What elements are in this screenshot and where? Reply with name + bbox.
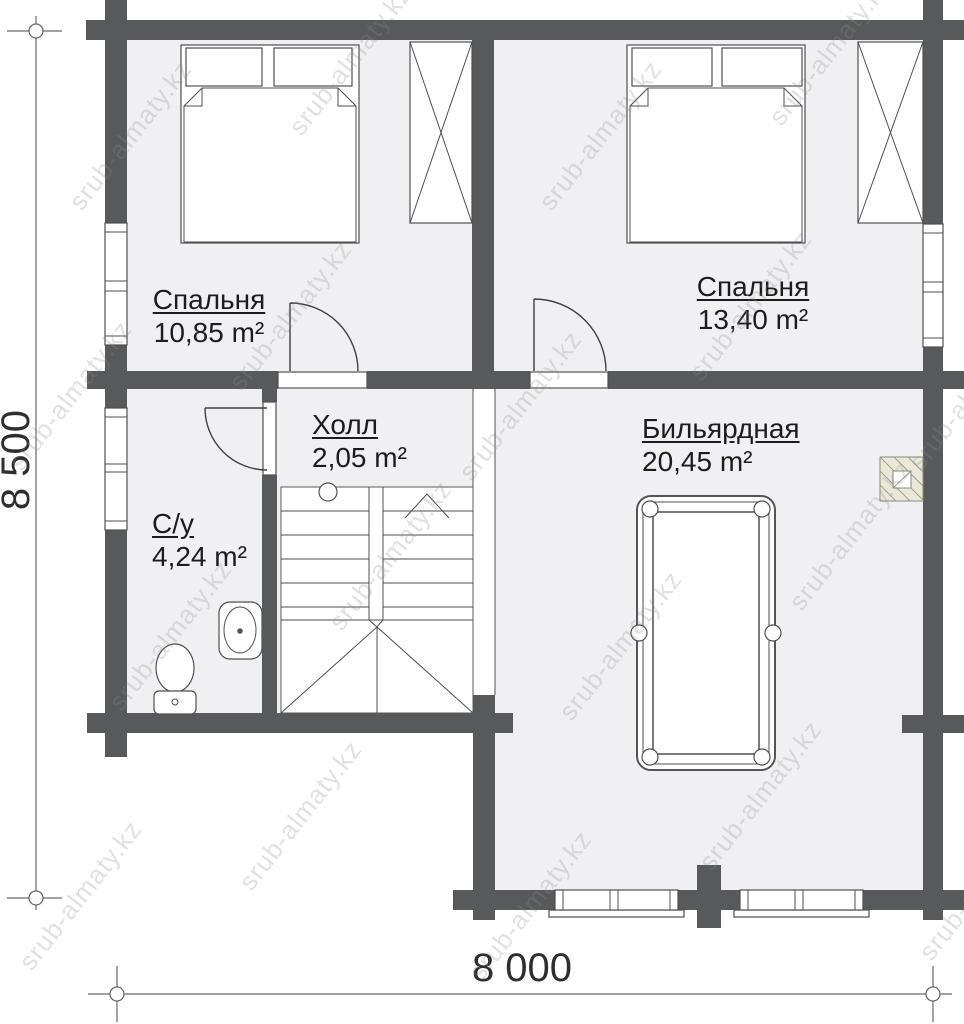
- room-label-bathroom: С/у 4,24 m²: [152, 508, 247, 573]
- room-area: 4,24 m²: [152, 541, 247, 572]
- room-label-bedroom2: Спальня 13,40 m²: [672, 271, 834, 336]
- wall-right-lower: [923, 347, 943, 920]
- wall-bottom-interior: [87, 713, 513, 733]
- wall-bottom-a: [453, 890, 555, 910]
- stairs-icon: [281, 483, 473, 713]
- wall-pier-stub-bottom: [697, 910, 721, 928]
- wardrobe-icon: [858, 42, 923, 223]
- wall-top: [86, 20, 964, 40]
- wardrobe-icon: [410, 42, 472, 223]
- bed-icon: [627, 45, 805, 243]
- wall-middle-c: [608, 371, 964, 389]
- toilet-icon: [154, 644, 196, 714]
- window-icon: [105, 223, 127, 345]
- room-name: Спальня: [697, 271, 810, 302]
- wall-bathroom-stub: [262, 389, 277, 402]
- dimension-width-label: 8 000: [420, 946, 624, 991]
- room-area: 10,85 m²: [128, 317, 290, 348]
- stair-newel-icon: [319, 483, 337, 501]
- wall-pier-stub-top: [697, 865, 721, 890]
- room-name: Бильярдная: [642, 413, 800, 444]
- room-area: 13,40 m²: [672, 304, 834, 335]
- room-name: Холл: [312, 409, 378, 440]
- billiard-table-icon: [631, 496, 781, 770]
- room-name: С/у: [152, 508, 194, 539]
- room-name: Спальня: [153, 284, 266, 315]
- wall-right-upper: [923, 0, 943, 224]
- plan-drawing: [0, 0, 964, 1024]
- wall-bathroom-partition: [262, 475, 277, 733]
- floor-plan: Спальня 10,85 m² Спальня 13,40 m² Холл 2…: [0, 0, 964, 1024]
- chimney-icon: [880, 457, 923, 501]
- room-area: 2,05 m²: [312, 442, 407, 473]
- wall-bedroom-divider: [472, 40, 494, 371]
- wall-log-end-right: [902, 715, 964, 733]
- room-label-billiard: Бильярдная 20,45 m²: [642, 413, 800, 478]
- room-label-hall: Холл 2,05 m²: [312, 409, 407, 474]
- wall-bottom-pier: [678, 890, 740, 910]
- wall-middle-a: [87, 371, 278, 389]
- window-icon: [734, 890, 869, 917]
- room-label-bedroom1: Спальня 10,85 m²: [128, 284, 290, 349]
- wall-billiard-left: [473, 695, 495, 920]
- window-icon: [923, 224, 943, 347]
- wall-middle-b: [367, 371, 530, 389]
- room-area: 20,45 m²: [642, 446, 800, 477]
- dimension-height-label: 8 500: [0, 380, 38, 540]
- window-icon: [549, 890, 684, 917]
- sink-icon: [219, 602, 262, 659]
- wall-bottom-b: [863, 890, 964, 910]
- window-icon: [105, 408, 127, 530]
- wall-left-upper: [105, 0, 127, 223]
- bed-icon: [181, 45, 359, 243]
